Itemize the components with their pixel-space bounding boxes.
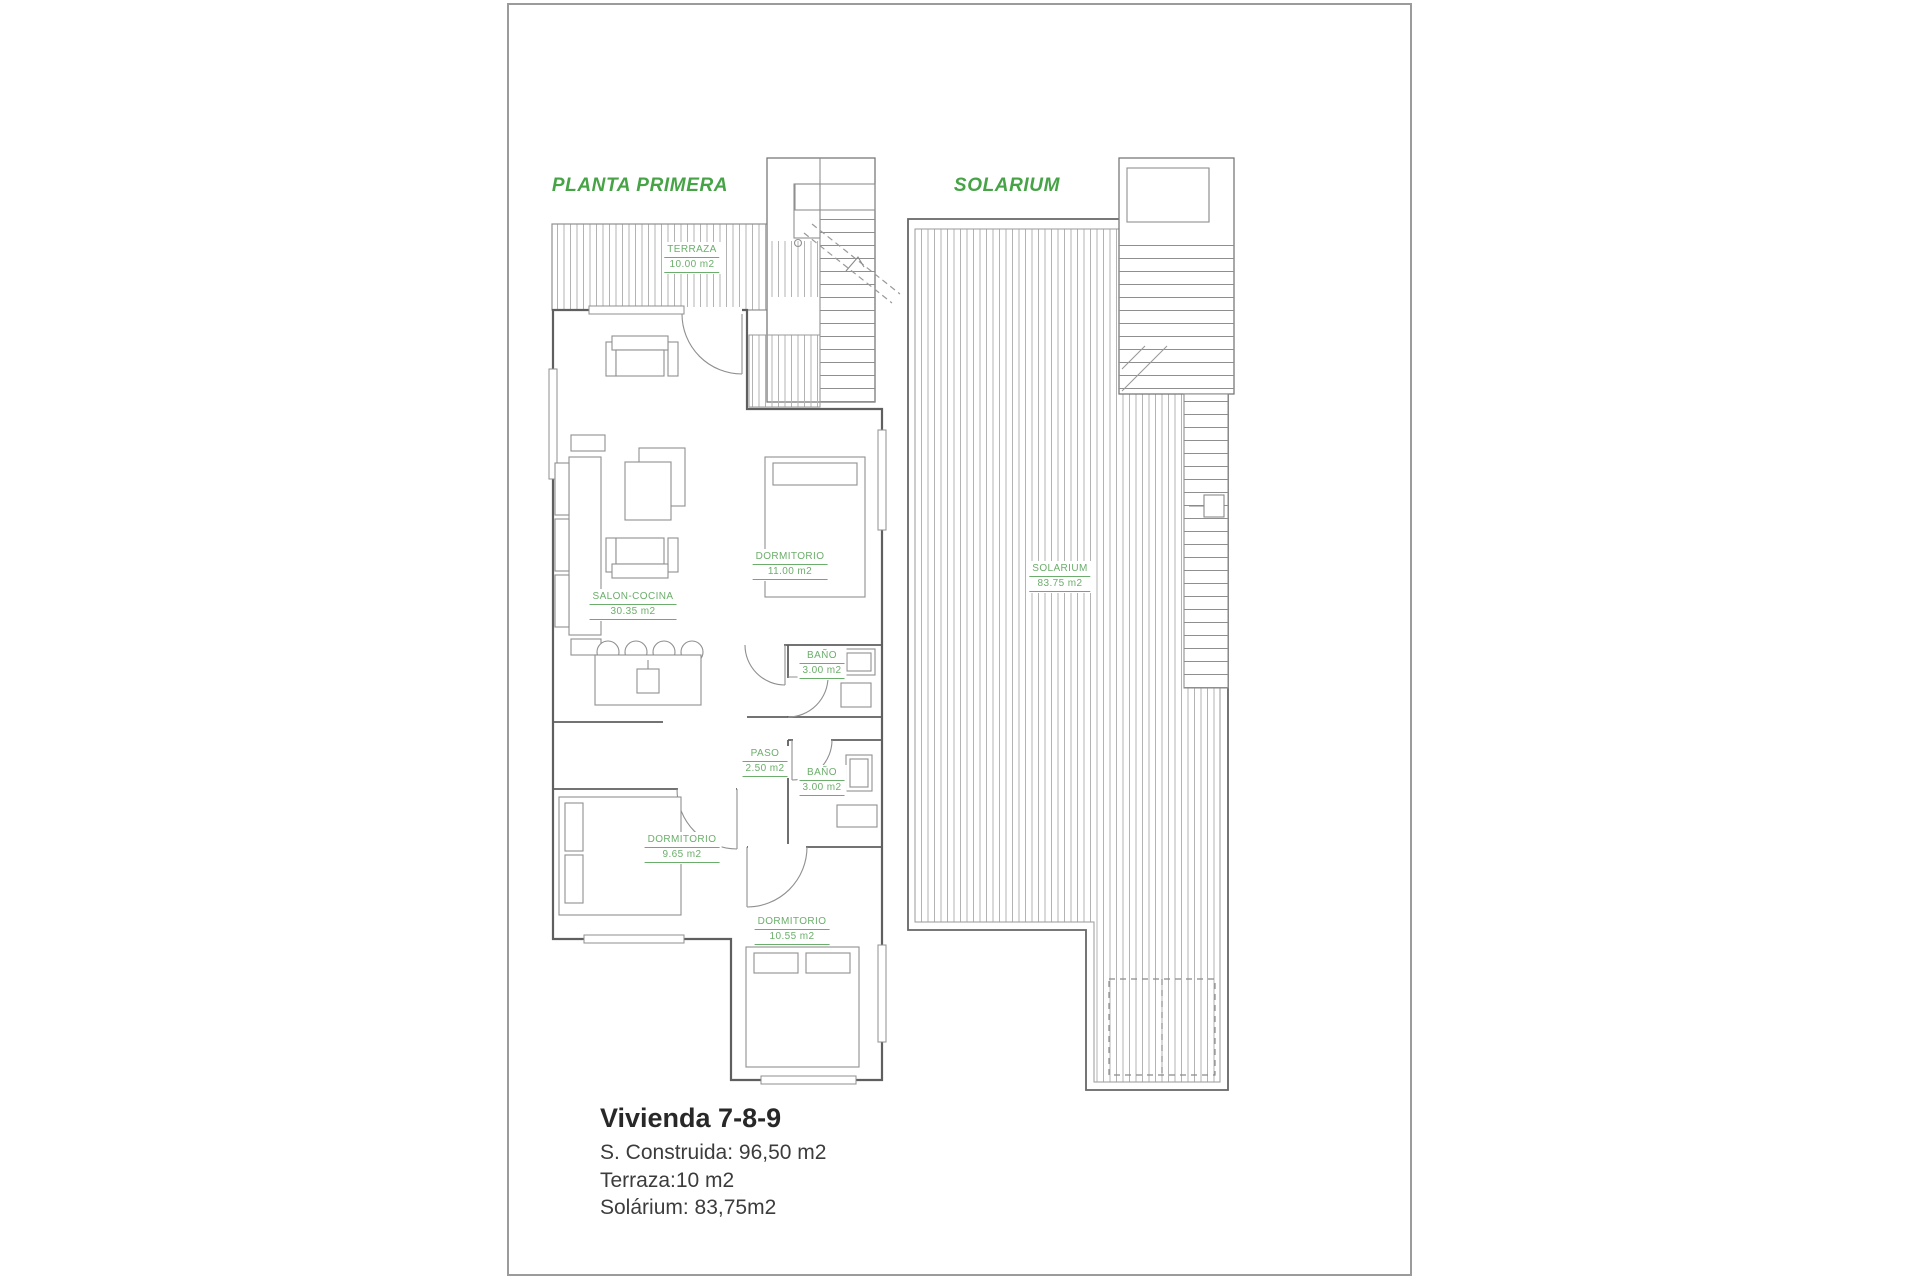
plan-sheet: PLANTA PRIMERA SOLARIUM TERRAZA 10.00 m2… bbox=[507, 3, 1412, 1276]
room-name: BAÑO bbox=[800, 649, 845, 664]
room-area: 2.50 m2 bbox=[743, 762, 788, 777]
room-label-solarium: SOLARIUM 83.75 m2 bbox=[1027, 561, 1092, 593]
room-area: 10.00 m2 bbox=[664, 258, 719, 273]
planta-primera-plan bbox=[549, 158, 900, 1084]
room-area: 3.00 m2 bbox=[800, 781, 845, 796]
solarium-area-line: Solárium: 83,75m2 bbox=[600, 1194, 826, 1222]
room-area: 83.75 m2 bbox=[1029, 577, 1090, 592]
dwelling-title: Vivienda 7-8-9 bbox=[600, 1103, 826, 1134]
room-area: 3.00 m2 bbox=[800, 664, 845, 679]
room-label-paso: PASO 2.50 m2 bbox=[741, 746, 790, 778]
room-label-bano-1: BAÑO 3.00 m2 bbox=[798, 648, 847, 680]
room-name: DORMITORIO bbox=[753, 550, 828, 565]
room-area: 10.55 m2 bbox=[755, 930, 830, 945]
terrace-area-line: Terraza:10 m2 bbox=[600, 1167, 826, 1195]
planta-primera-title: PLANTA PRIMERA bbox=[552, 175, 728, 197]
room-label-salon-cocina: SALON-COCINA 30.35 m2 bbox=[588, 589, 679, 621]
room-area: 9.65 m2 bbox=[645, 848, 720, 863]
terraza-deck bbox=[552, 224, 770, 310]
room-name: BAÑO bbox=[800, 766, 845, 781]
room-name: DORMITORIO bbox=[645, 833, 720, 848]
room-area: 30.35 m2 bbox=[590, 605, 677, 620]
room-label-dormitorio-1: DORMITORIO 11.00 m2 bbox=[751, 549, 830, 581]
built-area-line: S. Construida: 96,50 m2 bbox=[600, 1139, 826, 1167]
stair-landing-deck bbox=[749, 335, 820, 407]
room-name: PASO bbox=[743, 747, 788, 762]
plan-footer: Vivienda 7-8-9 S. Construida: 96,50 m2 T… bbox=[600, 1103, 826, 1222]
room-label-dormitorio-2: DORMITORIO 9.65 m2 bbox=[643, 832, 722, 864]
room-area: 11.00 m2 bbox=[753, 565, 828, 580]
room-label-terraza: TERRAZA 10.00 m2 bbox=[662, 242, 721, 274]
room-name: TERRAZA bbox=[664, 243, 719, 258]
room-label-dormitorio-3: DORMITORIO 10.55 m2 bbox=[753, 914, 832, 946]
solarium-plan bbox=[908, 158, 1234, 1090]
room-label-bano-2: BAÑO 3.00 m2 bbox=[798, 765, 847, 797]
solarium-title: SOLARIUM bbox=[954, 175, 1060, 197]
room-name: DORMITORIO bbox=[755, 915, 830, 930]
room-name: SALON-COCINA bbox=[590, 590, 677, 605]
room-name: SOLARIUM bbox=[1029, 562, 1090, 577]
